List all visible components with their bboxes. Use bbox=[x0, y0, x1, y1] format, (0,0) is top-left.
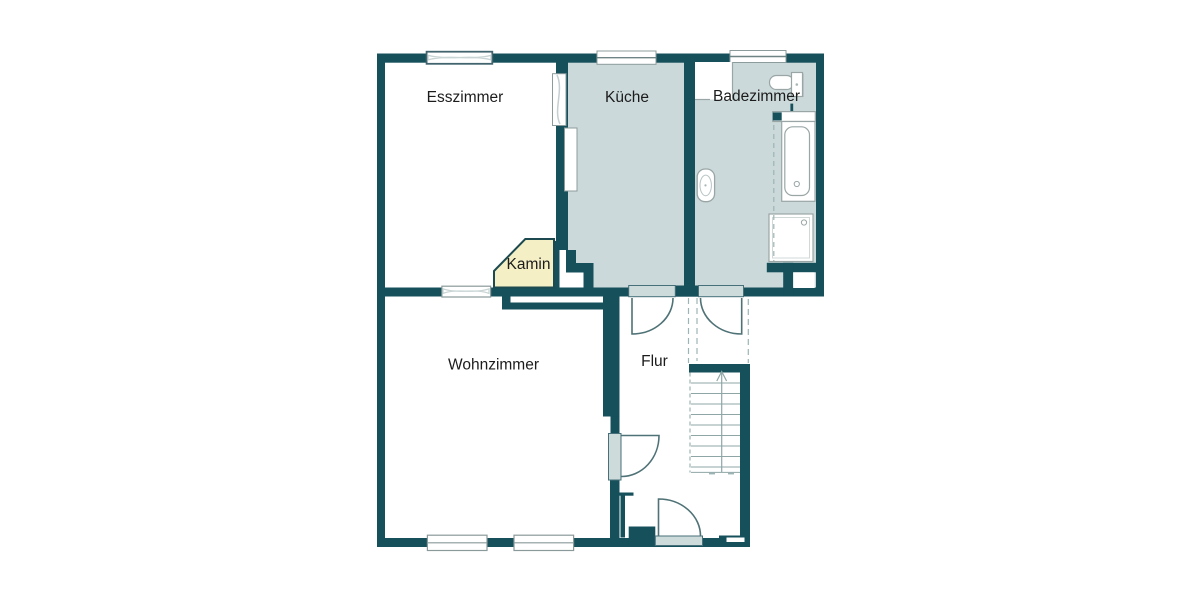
svg-text:Flur: Flur bbox=[641, 353, 668, 370]
svg-text:Badezimmer: Badezimmer bbox=[713, 88, 800, 105]
svg-text:Kamin: Kamin bbox=[507, 256, 551, 273]
svg-text:Esszimmer: Esszimmer bbox=[427, 89, 504, 106]
svg-text:Wohnzimmer: Wohnzimmer bbox=[448, 357, 539, 374]
svg-text:Küche: Küche bbox=[605, 89, 649, 106]
